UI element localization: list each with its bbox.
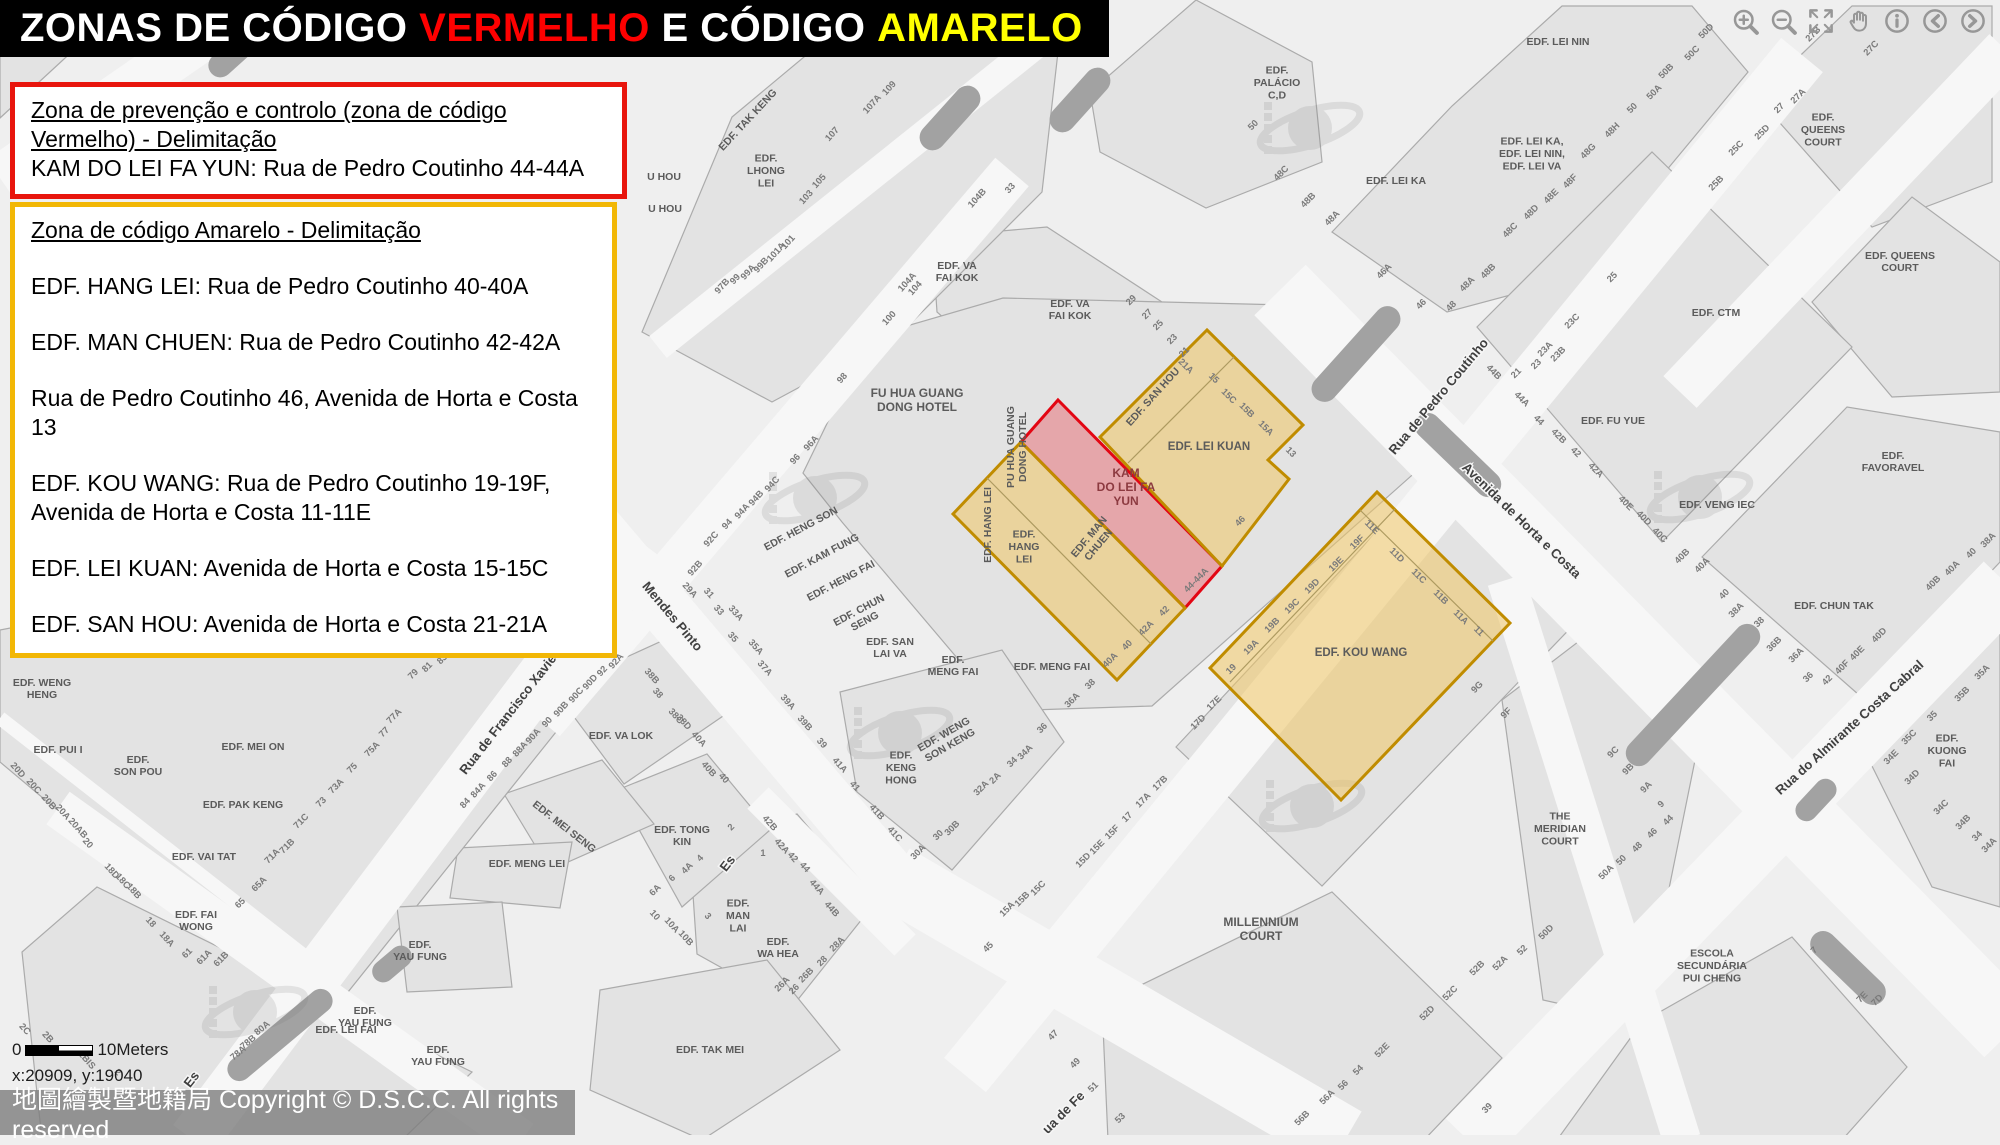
info-icon (1882, 6, 1912, 36)
building-label: EDF. VENG IEC (1679, 499, 1755, 511)
yellow-zone-legend-entry: EDF. SAN HOU: Avenida de Horta e Costa 2… (31, 610, 596, 639)
pan-button[interactable] (1843, 6, 1874, 37)
title-banner: ZONAS DE CÓDIGO VERMELHO E CÓDIGO AMAREL… (0, 0, 1109, 57)
scale-bar: 0 10Meters (12, 1040, 168, 1060)
full-extent-button[interactable] (1805, 6, 1836, 37)
full-extent-icon (1806, 6, 1836, 36)
zoom-in-icon (1730, 6, 1760, 36)
building-label: EDF. HANG LEI (982, 487, 994, 563)
yellow-zone-legend-entry: EDF. HANG LEI: Rua de Pedro Coutinho 40-… (31, 272, 596, 301)
building-label: U HOU (647, 171, 681, 183)
pan-icon (1844, 6, 1874, 36)
yellow-zone-legend: Zona de código Amarelo - Delimitação EDF… (10, 202, 617, 658)
zoom-in-button[interactable] (1729, 6, 1760, 37)
building-label: EDF. CHUN TAK (1794, 600, 1874, 612)
previous-view-button[interactable] (1919, 6, 1950, 37)
building-label: EDF. LEI KA (1366, 175, 1427, 187)
red-zone-legend-entry: KAM DO LEI FA YUN: Rua de Pedro Coutinho… (31, 154, 606, 183)
building-label: EDF. FU YUE (1581, 415, 1645, 427)
building-label: EDF. VA LOK (589, 730, 654, 742)
building-label: EDF. KOU WANG (1315, 647, 1408, 659)
building-label: EDF. MEI ON (221, 741, 284, 753)
banner-text-2: E CÓDIGO (650, 6, 877, 51)
previous-view-icon (1920, 6, 1950, 36)
building-label: EDF. PUI I (33, 744, 82, 756)
banner-text-3: AMARELO (877, 6, 1083, 51)
building-label: EDF.MANLAI (726, 898, 750, 935)
banner-text-0: ZONAS DE CÓDIGO (20, 6, 419, 51)
building-label: FU HUA GUANGDONG HOTEL (871, 386, 964, 414)
building-label: EDF. LEI KA,EDF. LEI NIN,EDF. LEI VA (1499, 136, 1565, 173)
next-view-icon (1958, 6, 1988, 36)
building-label: EDF. MENG FAI (1014, 661, 1091, 673)
map-toolbar (1729, 6, 1988, 37)
building-label: EDF. CTM (1692, 307, 1741, 319)
building-label: EDF. FAIWONG (175, 909, 217, 933)
building-label: EDF. VAFAI KOK (1049, 298, 1092, 322)
building-label: EDF. LEI FAI (315, 1024, 376, 1036)
info-button[interactable] (1881, 6, 1912, 37)
yellow-zone-legend-entry: EDF. MAN CHUEN: Rua de Pedro Coutinho 42… (31, 328, 596, 357)
copyright-bar: 地圖繪製暨地籍局 Copyright © D.S.C.C. All rights… (0, 1090, 575, 1135)
building-label: EDF. VAFAI KOK (936, 260, 979, 284)
zoom-out-button[interactable] (1767, 6, 1798, 37)
scale-bar-graphic (25, 1045, 93, 1056)
yellow-zone-legend-entry: EDF. KOU WANG: Rua de Pedro Coutinho 19-… (31, 469, 596, 527)
building-label: EDF. LEI KUAN (1168, 441, 1250, 453)
yellow-zone-legend-entry: EDF. LEI KUAN: Avenida de Horta e Costa … (31, 554, 596, 583)
scale-distance-label: 10Meters (97, 1040, 168, 1060)
building-label: EDF. TAK MEI (676, 1044, 744, 1056)
zoom-out-icon (1768, 6, 1798, 36)
city-block (450, 842, 572, 908)
banner-text-1: VERMELHO (419, 6, 650, 51)
scale-zero-label: 0 (12, 1040, 21, 1060)
building-label: EDF. SANLAI VA (866, 636, 914, 660)
building-label: EDF. VAI TAT (172, 851, 237, 863)
house-number: 1 (760, 848, 765, 858)
building-label: EDF.KENGHONG (885, 750, 917, 787)
building-label: EDF. PAK KENG (203, 799, 283, 811)
red-zone-legend-title: Zona de prevenção e controlo (zona de có… (31, 96, 606, 154)
building-label: PU HUA GUANGDONG HOTEL (1005, 406, 1029, 488)
building-label: U HOU (648, 203, 682, 215)
building-label: EDF. MENG LEI (489, 858, 566, 870)
next-view-button[interactable] (1957, 6, 1988, 37)
building-label: EDF. LEI NIN (1526, 36, 1589, 48)
yellow-zone-legend-title: Zona de código Amarelo - Delimitação (31, 216, 596, 245)
yellow-zone-legend-entry: Rua de Pedro Coutinho 46, Avenida de Hor… (31, 384, 596, 442)
red-zone-legend: Zona de prevenção e controlo (zona de có… (10, 82, 627, 199)
